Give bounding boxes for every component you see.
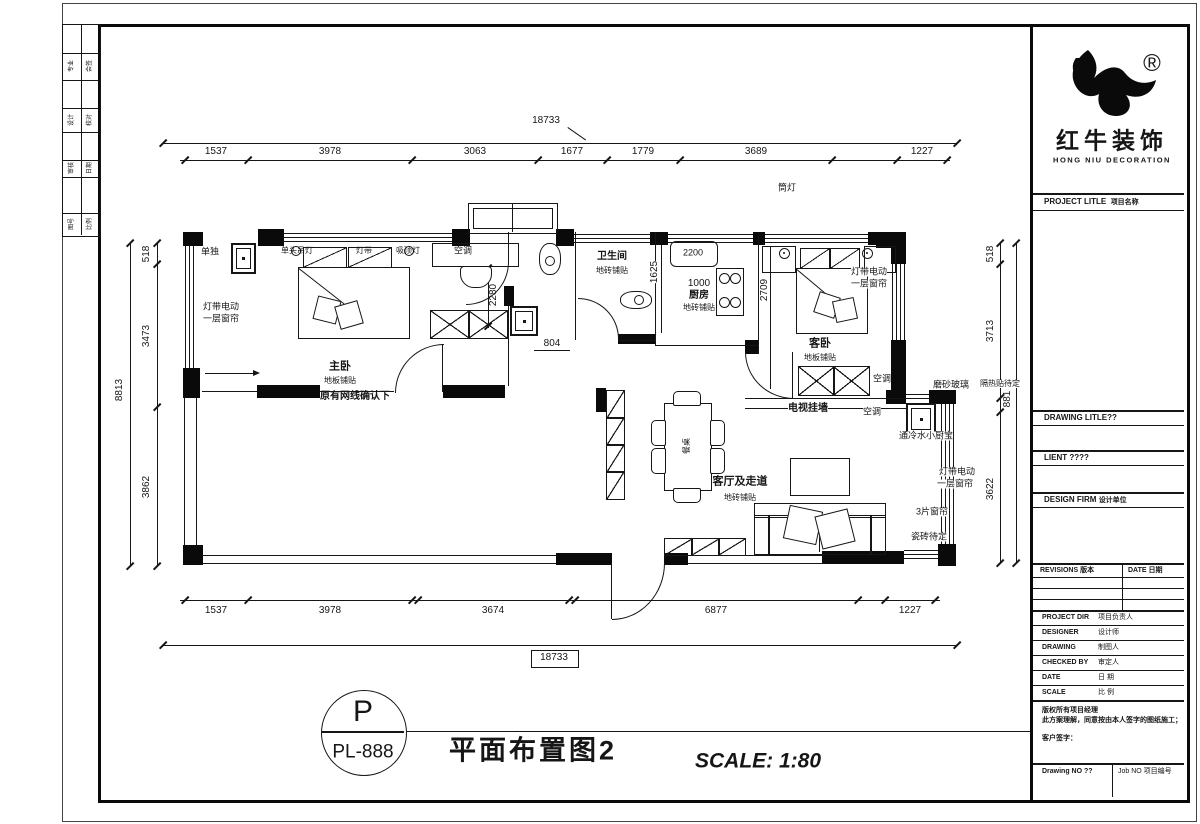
wall-segment (618, 334, 656, 344)
wardrobe (798, 366, 835, 396)
tb-line (1033, 640, 1184, 641)
curtain-note: 一层窗帘 (851, 280, 887, 289)
tb-revisions-header: REVISIONS 版本 (1040, 567, 1094, 574)
curtain-note: 灯带电动 (939, 468, 975, 477)
wall-line (655, 345, 759, 346)
network-note: 原有网线确认下 (320, 392, 390, 402)
tile-tbd-label: 瓷砖待定 (911, 533, 947, 542)
tb-row-en: DATE (1042, 674, 1061, 681)
edge-strip-col-divider (81, 24, 82, 235)
ceiling-lamp-icon (510, 306, 538, 336)
heater-label: 通冷水小厨宝 (899, 432, 953, 441)
curtain3-label: 3片窗帘 (916, 508, 948, 517)
curtain-note: 一层窗帘 (203, 315, 239, 324)
registered-mark: ® (1143, 52, 1161, 76)
title-block-divider (1030, 24, 1033, 800)
entry-bay-inner (473, 208, 553, 229)
stamp-code: PL-888 (332, 743, 393, 762)
dim-top: 1779 (632, 147, 654, 157)
ceiling-lamp-icon (231, 243, 256, 274)
tb-date-header: DATE 日期 (1128, 567, 1162, 574)
edge-strip-cell: 比例 (87, 218, 93, 230)
dim-top: 3978 (319, 147, 341, 157)
room-floor-master: 地板铺贴 (324, 377, 356, 385)
tb-row-cn: 制图人 (1098, 644, 1119, 651)
tb-line (1033, 492, 1184, 494)
dining-chair (710, 420, 725, 446)
wall-segment (443, 385, 505, 398)
tb-line (1033, 210, 1184, 211)
dim-1000: 1000 (688, 279, 710, 289)
edge-strip-cell: 设计 (69, 114, 75, 126)
brand-name-en: HONG NIU DECORATION (1053, 156, 1171, 164)
wall-segment (556, 553, 612, 565)
stove-burner (730, 297, 741, 308)
room-label-bath: 卫生间 (597, 252, 627, 262)
dining-chair (710, 448, 725, 474)
dim-804: 804 (544, 339, 561, 349)
curtain-note: 灯带电动 (203, 303, 239, 312)
edge-strip-cell: 审核 (69, 162, 75, 174)
dim-right: 881 (1003, 391, 1013, 408)
edge-strip-row (62, 80, 99, 81)
tb-line (1033, 685, 1184, 686)
room-label-guest: 客卧 (809, 339, 831, 350)
wall-line (745, 398, 931, 399)
wall-line (508, 304, 509, 386)
dim-line (1000, 243, 1001, 563)
dim-top: 3689 (745, 147, 767, 157)
tb-row-cn: 设计师 (1098, 629, 1119, 636)
room-label-master: 主卧 (329, 362, 351, 373)
wardrobe (468, 310, 508, 339)
tb-line (1033, 700, 1184, 702)
dim-left: 3473 (142, 325, 152, 347)
downlight-icon (779, 248, 790, 259)
wall-segment (886, 390, 906, 404)
door-leaf (792, 352, 793, 398)
wall-segment (596, 388, 606, 412)
tb-line (1033, 193, 1184, 195)
tb-line (1033, 763, 1184, 765)
tb-drawing-no: Drawing NO ?? (1042, 768, 1093, 775)
tb-line (1033, 610, 1184, 612)
downlight-note: 筒灯 (778, 184, 796, 193)
dining-chair (651, 448, 666, 474)
ac-label: 空调 (454, 247, 472, 256)
tb-line (1033, 563, 1184, 565)
edge-strip-row (62, 177, 99, 178)
wall-segment (556, 229, 574, 246)
tb-row-en: DESIGNER (1042, 629, 1079, 636)
room-label-kitchen: 厨房 (689, 291, 709, 301)
wall-line (202, 563, 556, 564)
room-floor-living: 地砖铺贴 (724, 494, 756, 502)
bedside-lamp-icon (291, 246, 301, 256)
wall-line (745, 408, 931, 409)
edge-strip-row (62, 213, 99, 214)
stove-burner (719, 297, 730, 308)
dim-line (130, 243, 131, 566)
toilet-bowl (634, 295, 644, 305)
shelf-unit (606, 471, 625, 500)
wardrobe (833, 366, 870, 396)
tb-line (1033, 450, 1184, 452)
ac-label: 空调 (863, 408, 881, 417)
tb-job-no: Job NO 项目编号 (1118, 768, 1172, 775)
dim-top: 1537 (205, 147, 227, 157)
tb-row-en: DRAWING (1042, 644, 1076, 651)
annotation-arrowhead (253, 370, 260, 376)
dining-chair (673, 391, 701, 406)
frosted-glass-label: 磨砂玻璃 (933, 381, 969, 390)
solo-switch-note: 单独 (201, 248, 219, 257)
tb-note-line1: 版权所有项目经理 (1042, 707, 1098, 714)
tb-footer-divider (1112, 763, 1113, 797)
edge-strip-row (62, 132, 99, 133)
dim-line (534, 350, 570, 351)
edge-strip-cell: 图号 (69, 218, 75, 230)
shoe-cabinet (664, 538, 693, 556)
dim-bottom: 3674 (482, 606, 504, 616)
sheet-title: 平面布置图2 (449, 738, 617, 765)
stamp-divider (322, 731, 404, 733)
stove-burner (730, 273, 741, 284)
dim-bottom: 6877 (705, 606, 727, 616)
tb-line (1033, 588, 1184, 589)
edge-strip-cell: 会签 (87, 60, 93, 72)
tb-note-line2: 此方案理解，同意按由本人签字的图纸施工； (1042, 717, 1182, 724)
ac-label: 空调 (873, 375, 891, 384)
bed-cushion (832, 297, 858, 323)
shoe-cabinet (691, 538, 720, 556)
dining-chair (651, 420, 666, 446)
edge-strip-cell: 校对 (87, 114, 93, 126)
wall-segment (183, 232, 203, 246)
toilet-bowl (545, 256, 555, 266)
wall-line (202, 391, 257, 392)
title-separator-line (321, 731, 1030, 732)
coffee-table (790, 458, 850, 496)
window-frosted-glass (906, 394, 929, 402)
window (574, 234, 650, 243)
wall-line (184, 398, 185, 545)
drawing-sheet: 专业 会签 设计 校对 审核 日期 图号 比例 18733 1537 3978 … (0, 0, 1200, 824)
room-label-living: 客厅及走道 (713, 477, 768, 488)
tb-note-line3: 客户签字： (1042, 735, 1077, 742)
tb-line (1033, 599, 1184, 600)
tb-line (1033, 425, 1184, 426)
insulation-note: 隔热贴待定 (980, 380, 1020, 388)
edge-strip-cell: 专业 (69, 60, 75, 72)
dim-line (163, 143, 957, 144)
door-leaf (442, 344, 443, 392)
tb-row-cn: 比 例 (1098, 689, 1114, 696)
shelf-unit (606, 390, 625, 419)
wall-segment (504, 286, 514, 306)
wall-segment (183, 368, 200, 398)
dining-chair (673, 488, 701, 503)
wall-segment (183, 545, 203, 565)
wall-line (655, 232, 656, 345)
tb-row-en: CHECKED BY (1042, 659, 1088, 666)
wall-segment (938, 544, 956, 566)
curtain-note: 一层窗帘 (937, 480, 973, 489)
tb-revisions-divider (1122, 563, 1123, 610)
dim-line (1016, 243, 1017, 563)
dim-top: 1677 (561, 147, 583, 157)
window (765, 234, 868, 243)
edge-strip-row (62, 160, 99, 161)
tb-row-cn: 项目负责人 (1098, 614, 1133, 621)
dim-left-total: 8813 (115, 379, 125, 401)
bedside-lamp-icon (404, 246, 414, 256)
dim-bottom: 3978 (319, 606, 341, 616)
dim-top-total: 18733 (532, 116, 560, 126)
dining-table-label: 餐桌 (683, 438, 691, 454)
pillow (303, 247, 347, 268)
tb-line (1033, 410, 1184, 412)
wall-segment (650, 232, 668, 245)
wall-line (202, 555, 556, 556)
shoe-cabinet (718, 538, 746, 556)
annotation-arrow (205, 373, 255, 374)
window (892, 264, 905, 340)
pillow (800, 248, 830, 269)
wall-segment (258, 229, 284, 246)
tb-row-cn: 日 期 (1098, 674, 1114, 681)
wall-line (196, 398, 197, 545)
tb-row-en: SCALE (1042, 689, 1066, 696)
dim-line (661, 245, 662, 333)
tb-line (1033, 670, 1184, 671)
entry-bay-divider (512, 203, 513, 232)
dim-2709: 2709 (760, 279, 770, 301)
shelf-unit (606, 417, 625, 446)
scale-text: SCALE: 1:80 (695, 751, 821, 772)
entry-door-leaf (611, 563, 612, 619)
stamp-letter: P (353, 697, 373, 727)
room-floor-guest: 地板铺贴 (804, 354, 836, 362)
room-floor-kitchen: 地砖铺贴 (683, 304, 715, 312)
tb-line (1033, 465, 1184, 466)
window (185, 246, 197, 368)
dim-2200: 2200 (683, 249, 703, 258)
dim-bottom-total: 18733 (540, 653, 568, 663)
brand-name-cn: 红牛装饰 (1056, 130, 1168, 153)
wall-segment (753, 232, 765, 245)
dim-top: 3063 (464, 147, 486, 157)
tb-client-label: LIENT ???? (1044, 454, 1089, 462)
wall-line (575, 232, 576, 340)
shelf-unit (606, 444, 625, 473)
pillow (348, 247, 392, 268)
wall-segment (257, 385, 320, 398)
room-floor-bath: 地砖铺贴 (596, 267, 628, 275)
dim-line (180, 600, 940, 601)
tb-project-title: PROJECT LITLE 项目名称 (1044, 198, 1139, 206)
dim-bottom: 1537 (205, 606, 227, 616)
wardrobe (430, 310, 470, 339)
wall-line (688, 563, 824, 564)
tb-project-title-cn: 项目名称 (1111, 199, 1139, 206)
tb-design-firm: DESIGN FIRM 设计单位 (1044, 496, 1127, 504)
dim-line (163, 645, 957, 646)
tb-drawing-title-label: DRAWING LITLE?? (1044, 414, 1117, 422)
downlight-icon (862, 248, 873, 259)
tv-wall-label: 电视挂墙 (788, 404, 828, 414)
wall-line (618, 340, 656, 341)
tb-line (1033, 625, 1184, 626)
dim-top: 1227 (911, 147, 933, 157)
edge-strip-row (62, 108, 99, 109)
dim-left: 3862 (142, 476, 152, 498)
dim-bottom: 1227 (899, 606, 921, 616)
tb-line (1033, 507, 1184, 508)
dim-right: 518 (986, 246, 996, 263)
edge-strip-cell: 日期 (87, 162, 93, 174)
tb-row-cn: 审定人 (1098, 659, 1119, 666)
tb-design-firm-cn: 设计单位 (1099, 497, 1127, 504)
dim-1625: 1625 (650, 261, 660, 283)
drawing-frame (98, 24, 1190, 803)
tb-line (1033, 655, 1184, 656)
window (904, 550, 938, 559)
edge-strip-row (62, 53, 99, 54)
tb-line (1033, 577, 1184, 578)
wall-segment (929, 390, 956, 404)
dim-line (180, 160, 950, 161)
sofa-arm (870, 515, 886, 555)
dim-left: 518 (142, 246, 152, 263)
dim-right: 3713 (986, 320, 996, 342)
stove-burner (719, 273, 730, 284)
wall-segment (891, 340, 906, 392)
dim-right: 3622 (986, 478, 996, 500)
tb-row-en: PROJECT DIR (1042, 614, 1089, 621)
window (282, 233, 452, 243)
curtain-note: 灯带电动 (851, 268, 887, 277)
